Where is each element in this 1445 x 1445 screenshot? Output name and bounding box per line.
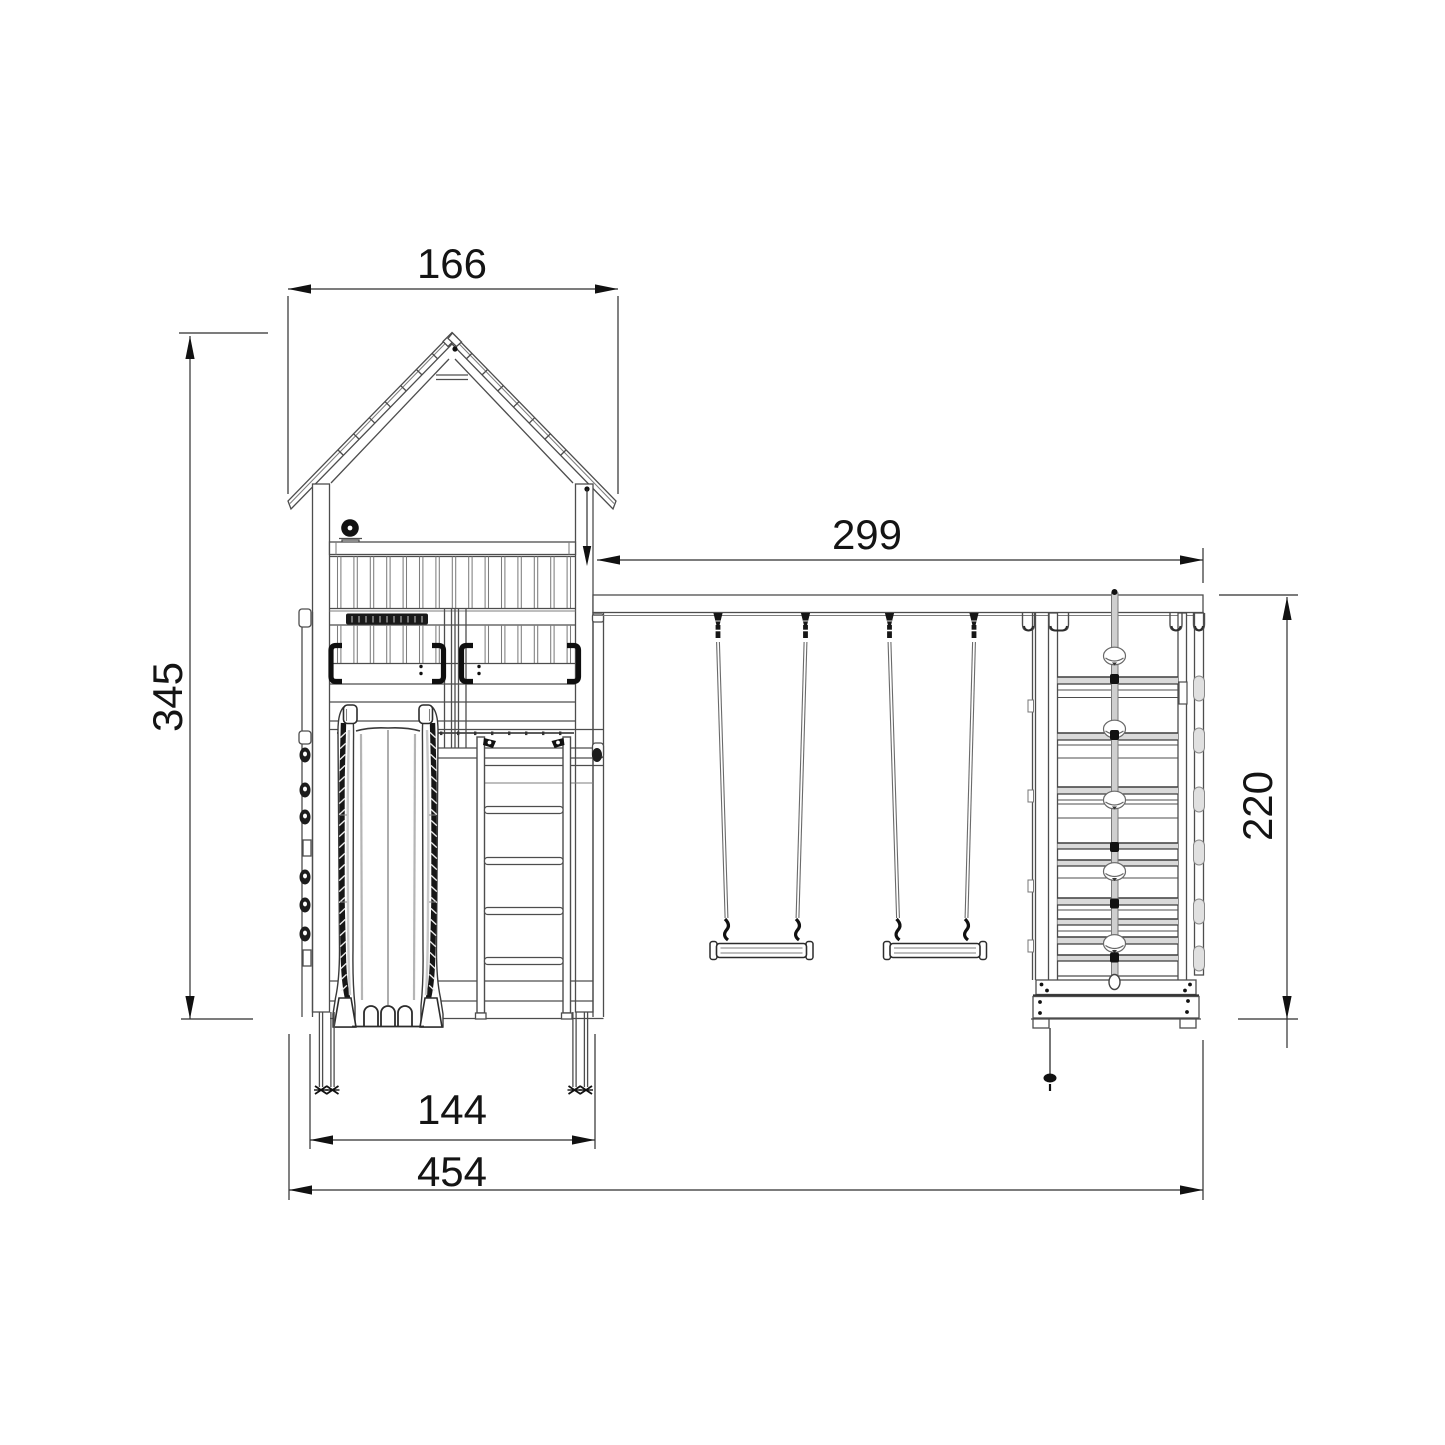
svg-text:299: 299 <box>832 511 902 558</box>
svg-text:345: 345 <box>144 662 191 732</box>
svg-text:454: 454 <box>417 1148 487 1195</box>
svg-text:144: 144 <box>417 1086 487 1133</box>
svg-text:220: 220 <box>1234 771 1281 841</box>
svg-text:166: 166 <box>417 240 487 287</box>
